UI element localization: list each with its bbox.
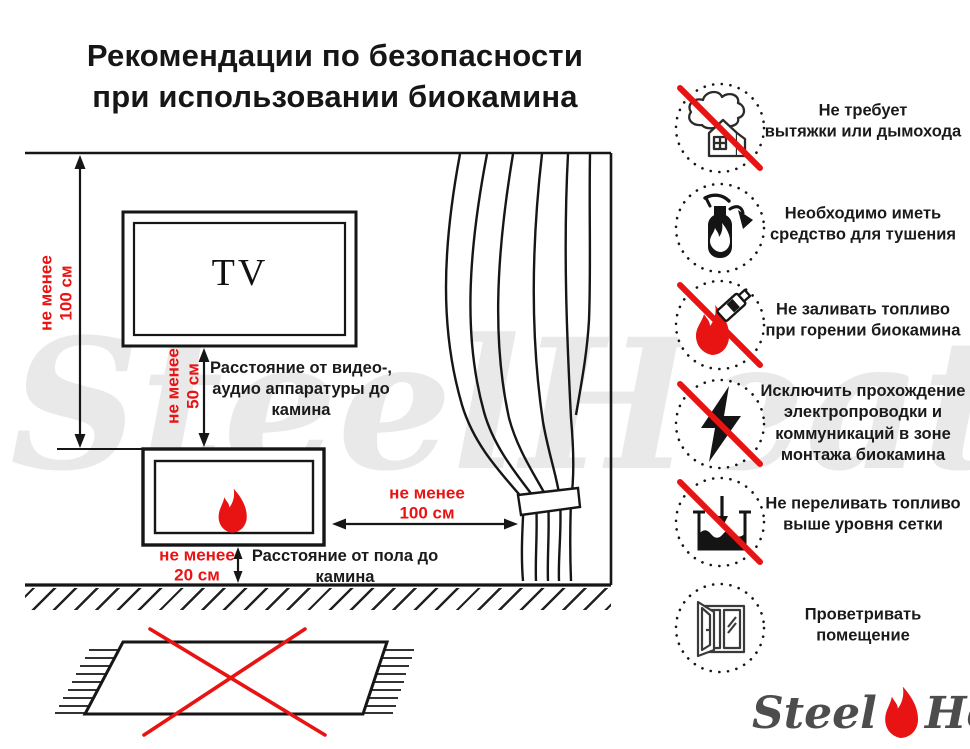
page-title: Рекомендации по безопасности при использ… (10, 36, 660, 118)
dim-fireplace-to-floor: не менее 20 см (159, 546, 235, 587)
dim-wall-to-tv: не менее 100 см (37, 255, 78, 331)
label-av-distance: Расстояние от видео-, аудио аппаратуры д… (201, 358, 401, 420)
no-overfill-icon (672, 474, 768, 570)
rule-label-ventilate: Проветривать помещение (755, 605, 970, 648)
logo-heat: Heat (925, 688, 970, 739)
label-floor-distance: Расстояние от пола до камина (245, 546, 445, 588)
curtain (446, 154, 590, 581)
steelheat-logo: Steel Heat (752, 684, 970, 739)
rule-label-no-refuel: Не заливать топливо при горении биокамин… (755, 300, 970, 343)
rule-label-no-overfill: Не переливать топливо выше уровня сетки (755, 494, 970, 537)
safety-poster: Steel Heat Рекомендации по безопасности … (0, 0, 970, 749)
fireplace-flame-icon (215, 485, 251, 535)
rule-label-extinguisher: Необходимо иметь средство для тушения (755, 204, 970, 247)
ventilate-icon (672, 580, 768, 676)
rule-label-no-chimney: Не требует вытяжки или дымохода (755, 101, 970, 144)
tv-label: TV (212, 251, 269, 295)
carpet (55, 629, 414, 735)
floor-hatching (25, 588, 611, 610)
rule-label-no-wiring: Исключить прохождение электропроводки и … (755, 381, 970, 467)
extinguisher-icon (672, 180, 768, 276)
no-chimney-icon (672, 80, 768, 176)
dim-fireplace-to-curtain: не менее 100 см (389, 484, 465, 525)
no-wiring-icon (672, 376, 768, 472)
logo-flame-icon (881, 684, 923, 739)
dim-tv-to-fireplace: не менее 50 см (164, 348, 205, 424)
logo-steel: Steel (752, 688, 877, 739)
no-refuel-icon (672, 277, 768, 373)
